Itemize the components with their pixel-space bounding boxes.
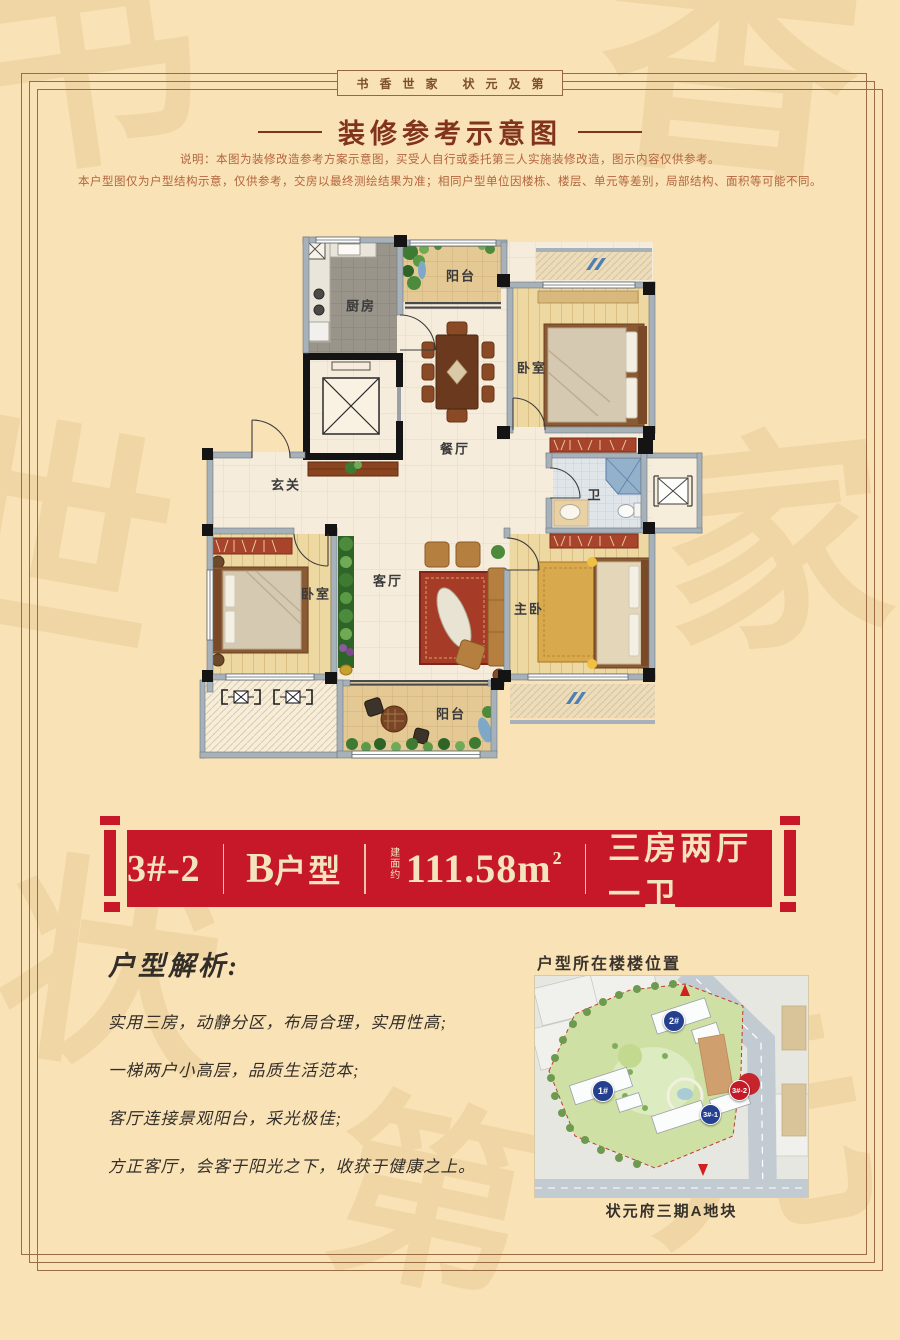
- round-table: [381, 706, 407, 732]
- unit-type: B户型: [246, 845, 342, 893]
- equipment-platform: [654, 476, 692, 506]
- analysis-title: 户型解析:: [108, 944, 538, 983]
- pillow: [626, 332, 637, 372]
- pillow: [626, 378, 637, 418]
- stove-burner: [314, 305, 324, 315]
- banner-ornament: [780, 816, 800, 825]
- building-badge-2: 2#: [663, 1010, 685, 1032]
- lamp: [587, 557, 597, 567]
- analysis-section: 户型解析: 实用三房，动静分区，布局合理，实用性高; 一梯两户小高层，品质生活范…: [108, 944, 538, 1201]
- room-label-balcony-bottom: 阳台: [434, 704, 466, 723]
- room-label-bedroom-top: 卧室: [515, 358, 547, 377]
- banner-ornament: [780, 902, 796, 912]
- room-label-bath: 卫: [585, 485, 602, 504]
- bedroom-left-furniture: [212, 556, 308, 666]
- plant-divider: [338, 536, 354, 675]
- pillow: [225, 575, 235, 607]
- room-label-dining: 餐厅: [438, 439, 470, 458]
- banner-ornament: [104, 830, 116, 896]
- headboard: [638, 326, 647, 424]
- lamp: [587, 659, 597, 669]
- area-prefix: 建面约: [388, 847, 398, 891]
- floorplan-drawing: [198, 232, 706, 764]
- area-sup: 2: [553, 848, 563, 868]
- kitchen-sink: [338, 244, 360, 255]
- title-dash-right: [578, 131, 642, 133]
- banner-divider: [223, 844, 225, 894]
- title-dash-left: [258, 131, 322, 133]
- area-value: 111.58m2: [406, 845, 563, 892]
- building-badge-1: 1#: [592, 1080, 614, 1102]
- banner-divider: [364, 844, 366, 894]
- banner-ornament: [100, 816, 120, 825]
- page-title: 装修参考示意图: [338, 112, 562, 151]
- unit-number: 3#-2: [127, 847, 201, 891]
- analysis-point: 客厅连接景观阳台，采光极佳;: [108, 1105, 538, 1129]
- shoe-cabinet: [308, 461, 398, 476]
- banner-ornament: [784, 830, 796, 896]
- motto-box: 书香世家 状元及第: [337, 70, 563, 96]
- toilet: [618, 505, 634, 518]
- room-label-bedroom-left: 卧室: [299, 584, 331, 603]
- floorplan: 厨房 阳台 卧室 餐厅 玄关 卫 卧室 客厅 主卧 阳台: [198, 232, 706, 764]
- pillow: [629, 566, 639, 608]
- location-title: 户型所在楼楼位置: [537, 950, 681, 974]
- building-badge-3-2: 3#-2: [729, 1080, 750, 1101]
- room-label-foyer: 玄关: [269, 475, 301, 494]
- plant: [491, 545, 505, 559]
- unit-banner: 3#-2 B户型 建面约 111.58m2 三房两厅一卫: [127, 830, 772, 907]
- building-badge-3-1: 3#-1: [700, 1104, 721, 1125]
- stove-burner: [314, 289, 324, 299]
- disclaimer-line1: 说明：本图为装修改造参考方案示意图，买受人自行或委托第三人实施装修改造，图示内容…: [0, 151, 900, 167]
- poster-page: { "colors": { "page_bg": "#f9e2b6", "fra…: [0, 0, 900, 1340]
- headboard: [641, 560, 650, 666]
- room-label-balcony-top: 阳台: [444, 266, 476, 285]
- armchair: [425, 542, 449, 567]
- site-map: 1# 2# 3#-1 3#-2: [535, 976, 808, 1197]
- unit-type-suffix: 户型: [274, 853, 342, 889]
- analysis-point: 方正客厅，会客于阳光之下，收获于健康之上。: [108, 1153, 538, 1177]
- armchair: [456, 542, 480, 567]
- pillow: [629, 614, 639, 656]
- analysis-point: 实用三房，动静分区，布局合理，实用性高;: [108, 1009, 538, 1033]
- unit-type-letter: B: [246, 846, 274, 892]
- pillow: [225, 611, 235, 643]
- motto-text: 书香世家 状元及第: [345, 75, 554, 92]
- page-title-row: 装修参考示意图: [0, 112, 900, 151]
- layout-text: 三房两厅一卫: [608, 823, 772, 915]
- room-label-living: 客厅: [371, 571, 403, 590]
- location-caption: 状元府三期A地块: [535, 1200, 808, 1221]
- banner-divider: [585, 844, 587, 894]
- banner-ornament: [104, 902, 120, 912]
- sink: [560, 505, 580, 520]
- analysis-point: 一梯两户小高层，品质生活范本;: [108, 1057, 538, 1081]
- master-furniture: [538, 557, 650, 669]
- room-label-master: 主卧: [512, 599, 544, 618]
- room-label-kitchen: 厨房: [344, 296, 376, 315]
- disclaimer-line2: 本户型图仅为户型结构示意，仅供参考，交房以最终测绘结果为准；相同户型单位因楼栋、…: [0, 173, 900, 189]
